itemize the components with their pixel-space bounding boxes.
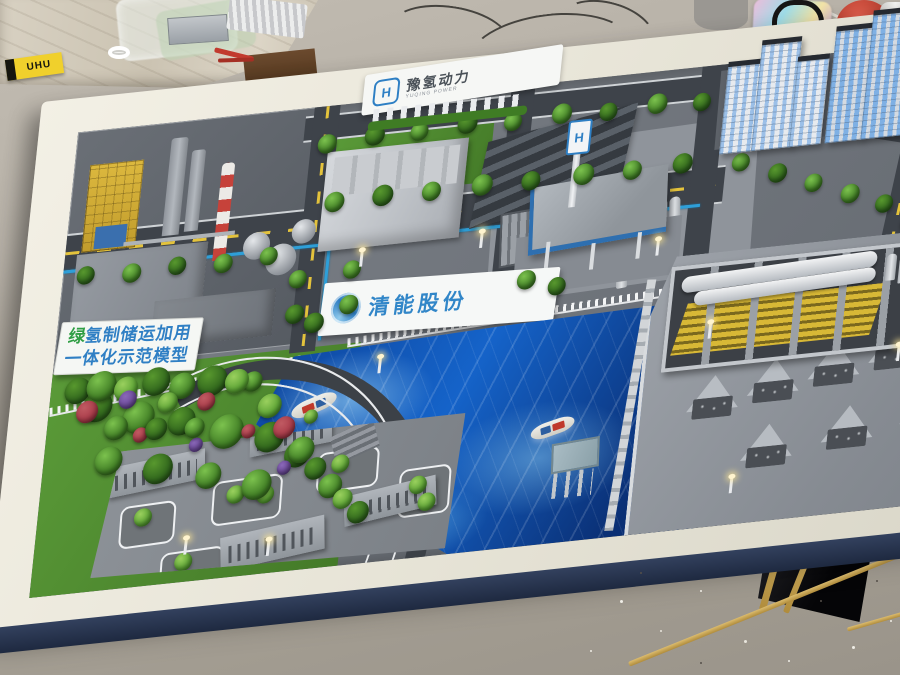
loading-gantry <box>737 421 798 474</box>
gantry-equipment <box>745 444 787 469</box>
street-lamp <box>359 251 364 267</box>
floor-speck <box>620 600 623 603</box>
gantry-equipment <box>752 379 794 404</box>
loading-gantry <box>744 356 805 409</box>
loading-gantry <box>817 402 878 455</box>
floor-speck <box>852 646 855 649</box>
tree <box>840 183 861 204</box>
tree <box>804 173 824 193</box>
company-name: 清能股份 <box>367 284 470 321</box>
floor-speck <box>700 590 702 592</box>
tape-roll <box>108 46 130 59</box>
boat-cargo <box>540 425 551 435</box>
street-lamp <box>479 233 484 249</box>
gate-text: 豫氢动力 YUQING POWER <box>405 68 471 99</box>
boat <box>530 413 576 443</box>
water-platform <box>547 437 601 499</box>
loading-gantry <box>896 384 900 437</box>
glue-box-label: UHU <box>26 59 52 73</box>
title-line-2: 一体化示范模型 <box>63 344 191 370</box>
floor-speck <box>700 662 702 664</box>
floor-speck <box>876 580 878 582</box>
metal-box <box>167 14 229 45</box>
workshop-photo: UHU <box>0 0 900 675</box>
floor-speck <box>890 620 892 622</box>
tree <box>767 162 788 183</box>
model-table: H 绿氢制储运加用 一体化示范模型 清能股份 <box>0 0 900 631</box>
floor-speck <box>788 660 790 662</box>
pylon-sign: H <box>566 118 594 155</box>
gate-logo-letter: H <box>381 84 392 101</box>
boat-cargo <box>552 420 565 431</box>
floor-speck <box>640 572 642 574</box>
gantry-equipment <box>813 362 855 387</box>
gray-cloth <box>694 0 748 30</box>
planting-island <box>118 500 177 550</box>
floor-speck <box>744 640 747 643</box>
floor-speck <box>590 650 592 652</box>
gate-logo: H <box>372 77 401 108</box>
model-title-sign: 绿氢制储运加用 一体化示范模型 <box>53 317 204 375</box>
floor-speck <box>660 630 662 632</box>
loading-gantry <box>683 372 744 425</box>
gantry-equipment <box>826 425 868 450</box>
gantry-equipment <box>691 395 733 420</box>
floor-speck <box>820 600 822 602</box>
pylon-logo-letter: H <box>574 129 585 145</box>
